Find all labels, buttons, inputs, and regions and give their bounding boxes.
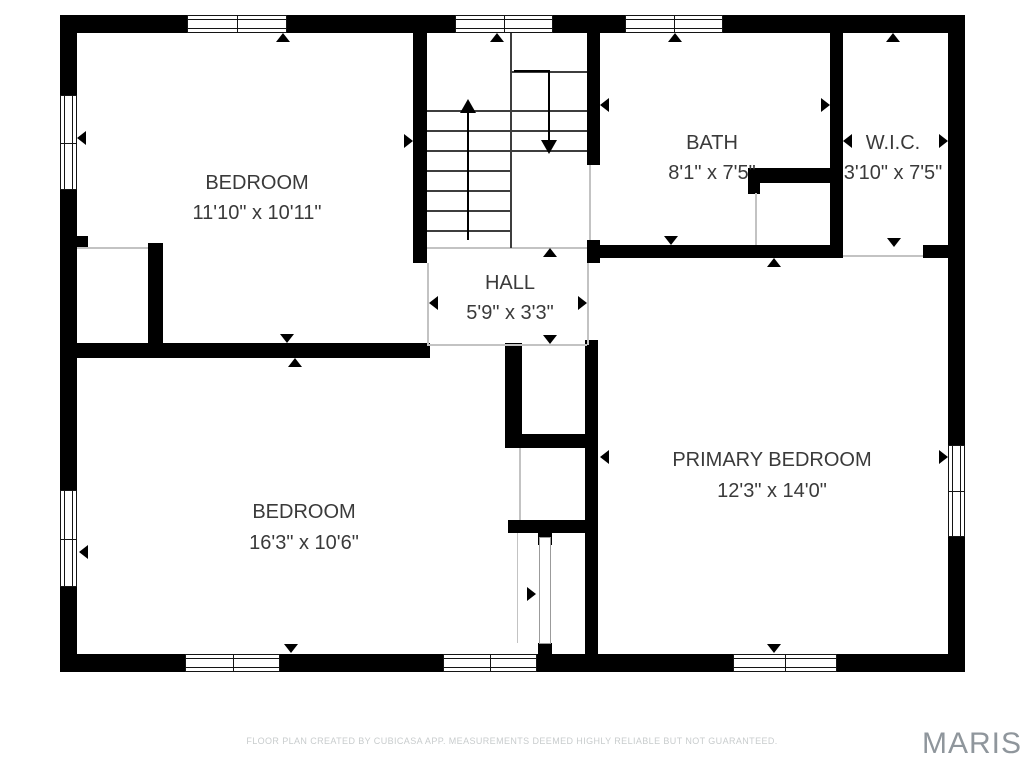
window-left-bedroom2 <box>60 490 77 587</box>
stairs-down-arrow-vline <box>548 70 550 142</box>
window-bottom-bedroom2-right <box>443 654 537 672</box>
window-top-stairs <box>455 15 553 33</box>
door-leaf-bedroom2 <box>539 537 551 644</box>
door-leaf-bath-closet <box>755 193 757 245</box>
marker-bath-window <box>668 33 682 42</box>
window-mullion <box>61 143 76 144</box>
marker-hall-top <box>543 248 557 257</box>
label-primary-bedroom: PRIMARY BEDROOM 12'3" x 14'0" <box>622 445 922 507</box>
boundary-bedroom2-doorstrip <box>517 533 518 643</box>
marker-primary-right-window <box>939 450 948 464</box>
window-bottom-primary <box>733 654 837 672</box>
opening-bedroom1-closet <box>77 247 148 249</box>
label-bedroom-top-left: BEDROOM 11'10" x 10'11" <box>107 168 407 228</box>
room-name: BEDROOM <box>107 168 407 198</box>
marker-hall-bottom <box>543 335 557 344</box>
window-right-primary <box>948 445 965 537</box>
window-mullion <box>949 491 964 492</box>
marker-wic-top <box>886 33 900 42</box>
opening-wic-entry <box>843 255 923 257</box>
marker-primary-top <box>767 258 781 267</box>
window-mullion <box>233 655 234 671</box>
marker-bedroom1-left-window <box>77 131 86 145</box>
room-name: W.I.C. <box>743 128 1024 158</box>
stairs-up-arrow-line <box>467 112 469 240</box>
room-dimensions: 12'3" x 14'0" <box>622 476 922 507</box>
room-dimensions: 11'10" x 10'11" <box>107 198 407 228</box>
stairs-down-arrow-hline <box>514 70 550 72</box>
window-mullion <box>674 16 675 32</box>
outer-wall-right <box>948 15 965 672</box>
room-dimensions: 16'3" x 10'6" <box>154 528 454 559</box>
window-top-bath <box>625 15 723 33</box>
boundary-stairs-hall <box>427 247 587 249</box>
stairs-up-arrowhead <box>460 99 476 113</box>
wall-bedroom1-right <box>413 33 427 263</box>
wall-wic-bottom-right <box>923 245 948 258</box>
marker-bedroom2-door <box>527 587 536 601</box>
wall-bedrooms-divider <box>60 343 430 358</box>
wall-bottom-door-tab <box>538 643 552 656</box>
room-dimensions: 5'9" x 3'3" <box>360 298 660 328</box>
window-mullion <box>785 655 786 671</box>
label-wic: W.I.C. 3'10" x 7'5" <box>743 128 1024 188</box>
marker-bath-left <box>600 98 609 112</box>
window-top-bedroom1 <box>187 15 287 33</box>
marker-bedroom1-right <box>404 134 413 148</box>
stairs-center-divider <box>510 33 512 248</box>
opening-closet2 <box>519 448 521 520</box>
marker-bedroom1-top <box>276 33 290 42</box>
window-mullion <box>61 539 76 540</box>
window-bottom-bedroom2-left <box>185 654 280 672</box>
marker-bedroom2-bottom-window <box>284 644 298 653</box>
wall-bedroom1-closet-right <box>148 243 163 343</box>
marker-bath-right <box>821 98 830 112</box>
marker-bedroom2-top <box>288 358 302 367</box>
marker-primary-left <box>600 450 609 464</box>
marker-bath-bottom <box>664 236 678 245</box>
marker-bedroom1-bottom <box>280 334 294 343</box>
room-name: PRIMARY BEDROOM <box>622 445 922 476</box>
label-hall: HALL 5'9" x 3'3" <box>360 268 660 328</box>
marker-primary-bottom-window <box>767 644 781 653</box>
room-dimensions: 3'10" x 7'5" <box>743 158 1024 188</box>
window-left-bedroom1 <box>60 95 77 190</box>
marker-wic-entry <box>887 238 901 247</box>
window-mullion <box>490 655 491 671</box>
floorplan-canvas: BEDROOM 11'10" x 10'11" BATH 8'1" x 7'5"… <box>0 0 1024 768</box>
wall-hall-closet-left <box>505 343 522 448</box>
wall-closets-divider <box>522 434 586 448</box>
marker-bedroom2-left-window <box>79 545 88 559</box>
stairs-down-arrowhead <box>541 140 557 154</box>
marker-stairs-window <box>490 33 504 42</box>
wall-primary-left <box>585 340 598 654</box>
window-mullion <box>504 16 505 32</box>
maris-watermark: MARIS <box>922 727 1022 761</box>
room-name: HALL <box>360 268 660 298</box>
wall-bath-bottom <box>587 245 843 258</box>
window-mullion <box>237 16 238 32</box>
room-name: BEDROOM <box>154 497 454 528</box>
boundary-hall-bottom <box>427 344 587 346</box>
wall-closet2-bottom <box>508 520 592 533</box>
label-bedroom-bottom-left: BEDROOM 16'3" x 10'6" <box>154 497 454 559</box>
footer-disclaimer: FLOOR PLAN CREATED BY CUBICASA APP. MEAS… <box>0 736 1024 746</box>
